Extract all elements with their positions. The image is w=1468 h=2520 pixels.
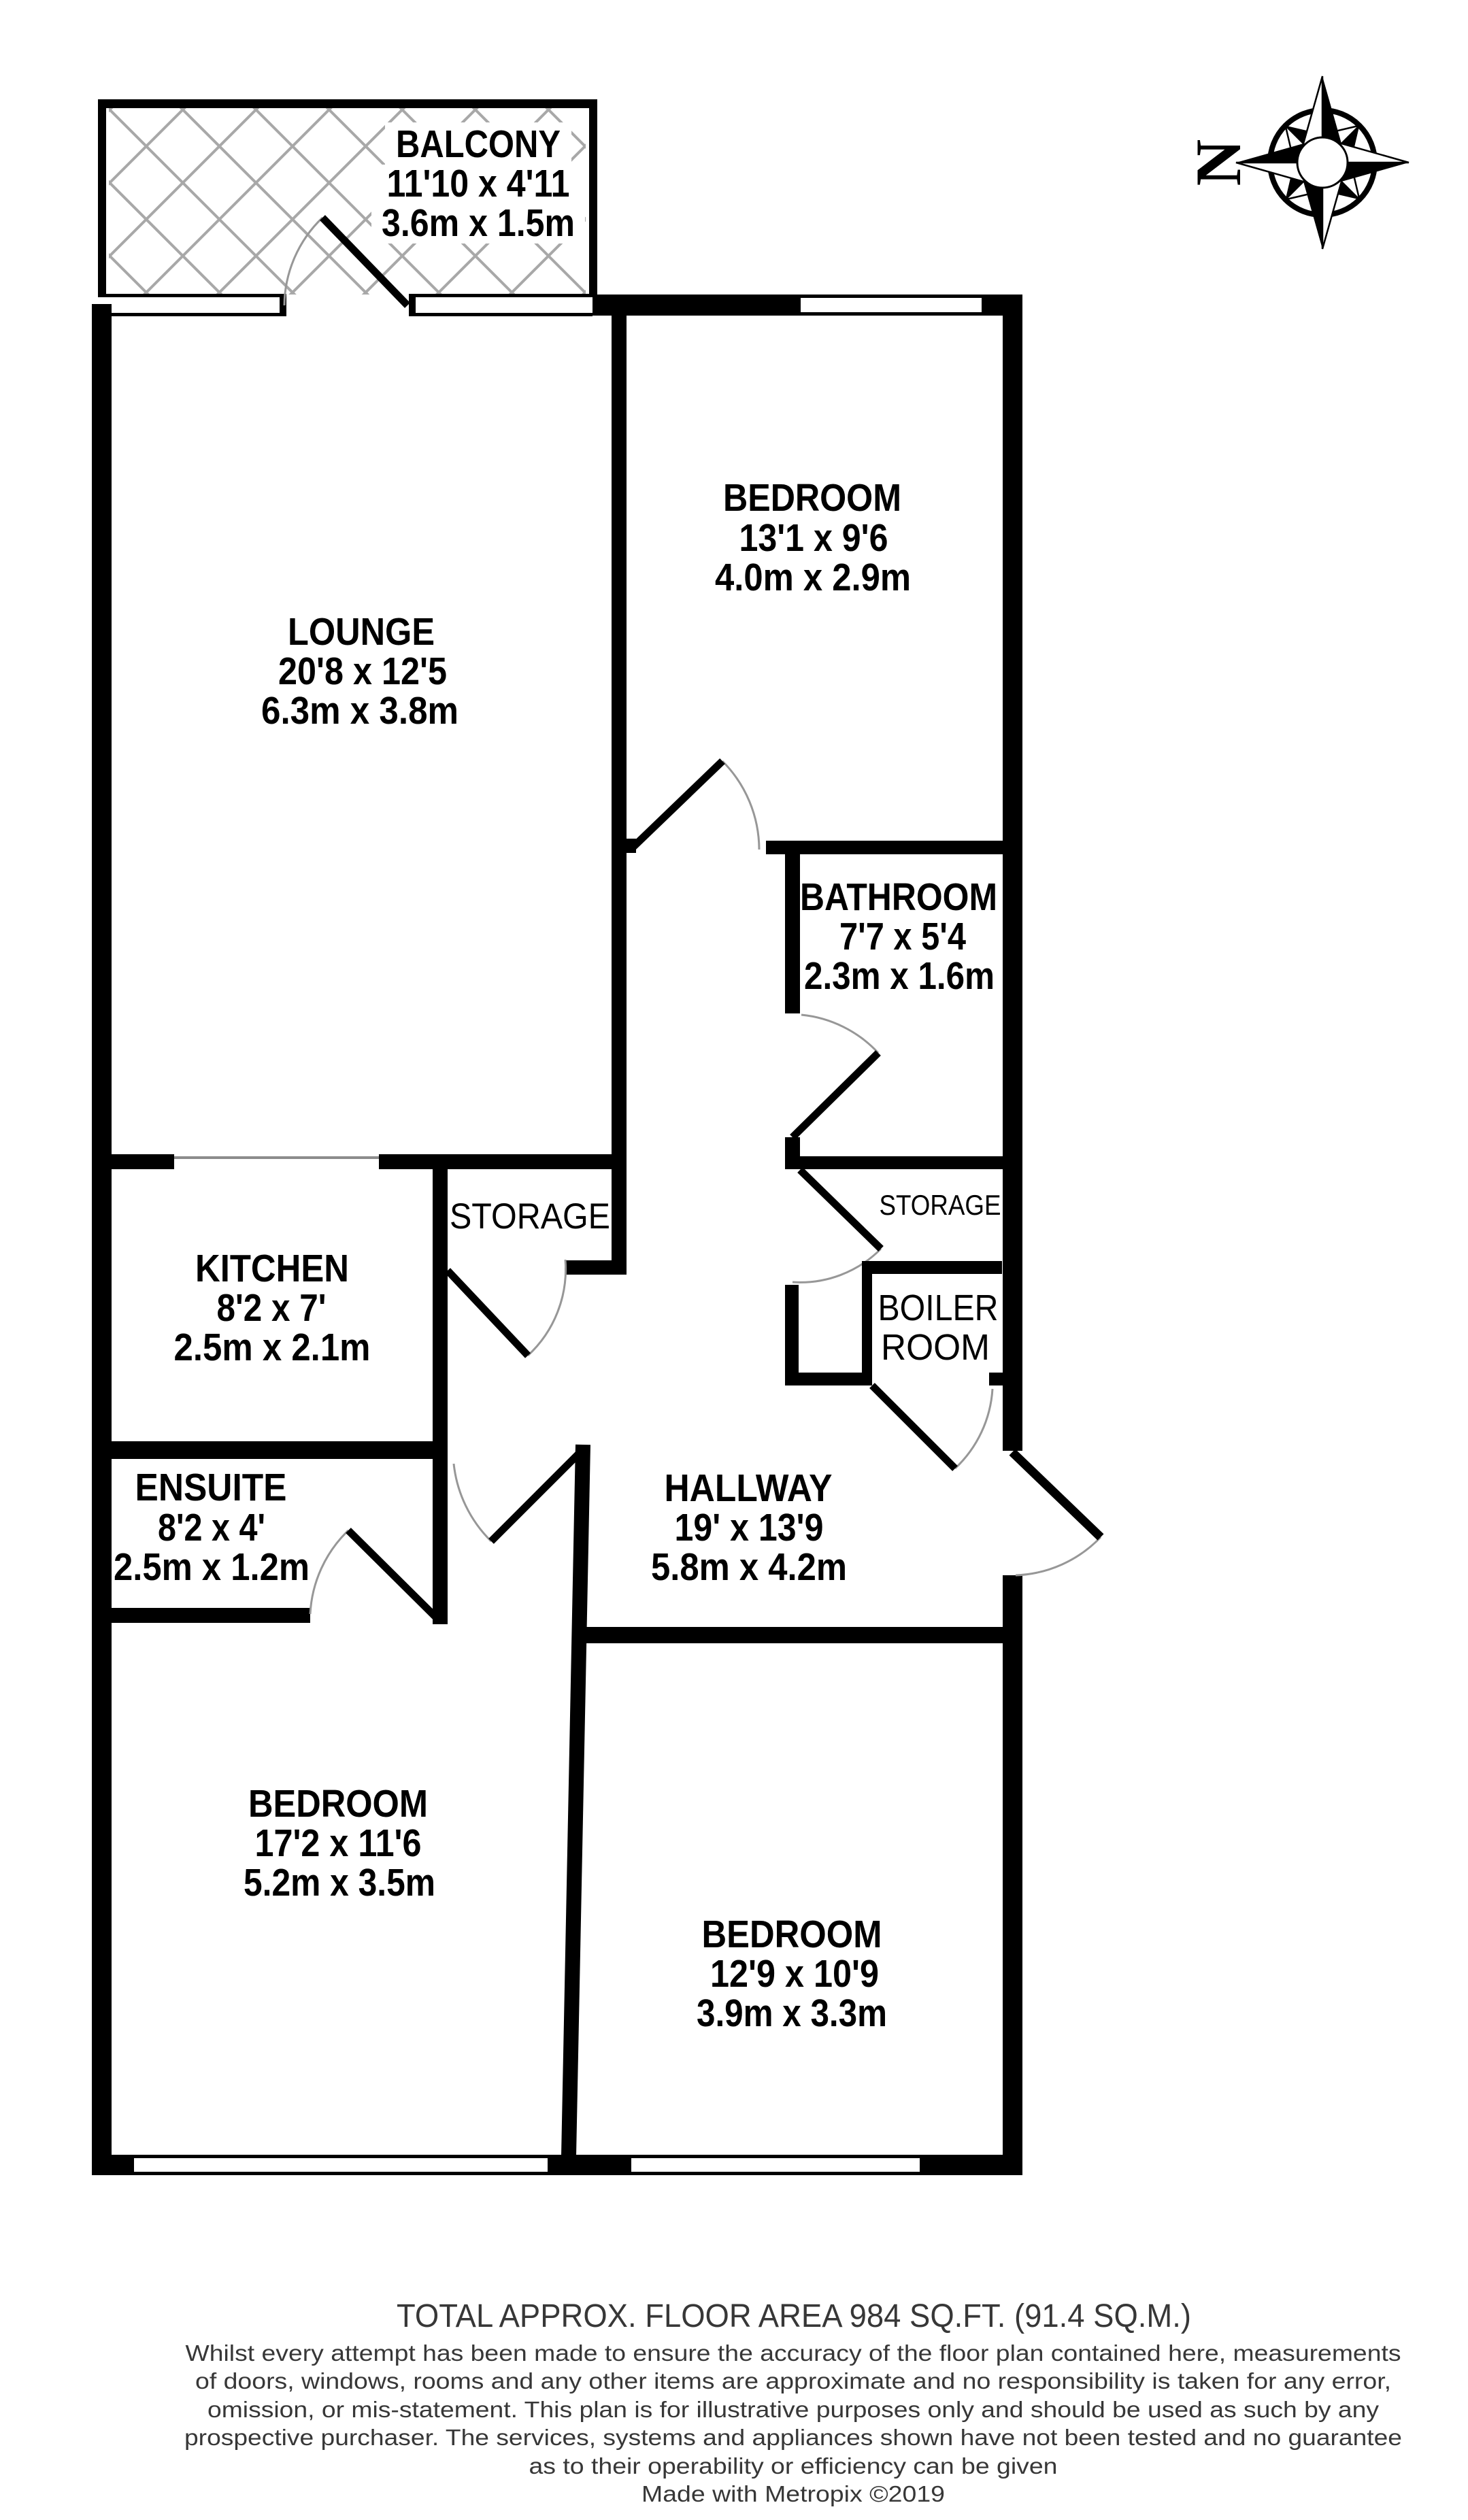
- svg-text:KITCHEN: KITCHEN: [195, 1247, 349, 1290]
- svg-text:2.5m x 1.2m: 2.5m x 1.2m: [114, 1545, 310, 1589]
- svg-text:N: N: [1182, 139, 1254, 186]
- svg-text:19' x 13'9: 19' x 13'9: [675, 1506, 824, 1549]
- svg-text:omission, or mis-statement. Th: omission, or mis-statement. This plan is…: [207, 2397, 1380, 2422]
- svg-text:13'1 x 9'6: 13'1 x 9'6: [739, 516, 888, 560]
- svg-text:17'2 x 11'6: 17'2 x 11'6: [255, 1821, 422, 1865]
- svg-text:2.5m x 2.1m: 2.5m x 2.1m: [174, 1326, 371, 1369]
- svg-text:5.8m x 4.2m: 5.8m x 4.2m: [651, 1545, 847, 1589]
- svg-text:11'10 x 4'11: 11'10 x 4'11: [387, 162, 570, 205]
- svg-text:3.6m x 1.5m: 3.6m x 1.5m: [382, 201, 575, 245]
- svg-text:BEDROOM: BEDROOM: [702, 1913, 882, 1956]
- svg-text:7'7 x 5'4: 7'7 x 5'4: [839, 915, 966, 958]
- svg-text:BEDROOM: BEDROOM: [723, 476, 901, 520]
- svg-text:of doors, windows, rooms and a: of doors, windows, rooms and any other i…: [195, 2368, 1391, 2393]
- svg-text:ROOM: ROOM: [881, 1327, 990, 1368]
- svg-text:HALLWAY: HALLWAY: [665, 1466, 833, 1510]
- svg-text:BEDROOM: BEDROOM: [248, 1782, 428, 1826]
- svg-text:3.9m x 3.3m: 3.9m x 3.3m: [697, 1992, 887, 2035]
- svg-text:6.3m x 3.8m: 6.3m x 3.8m: [261, 689, 458, 733]
- svg-text:2.3m x 1.6m: 2.3m x 1.6m: [804, 954, 995, 998]
- svg-text:BATHROOM: BATHROOM: [800, 875, 997, 919]
- svg-text:ENSUITE: ENSUITE: [135, 1466, 287, 1509]
- svg-text:8'2 x 7': 8'2 x 7': [217, 1286, 327, 1330]
- svg-text:prospective purchaser. The ser: prospective purchaser. The services, sys…: [184, 2425, 1402, 2450]
- svg-text:BOILER: BOILER: [878, 1288, 999, 1328]
- svg-text:as to their operability or eff: as to their operability or efficiency ca…: [529, 2453, 1058, 2479]
- svg-text:5.2m x 3.5m: 5.2m x 3.5m: [244, 1861, 435, 1904]
- svg-text:BALCONY: BALCONY: [396, 122, 561, 166]
- svg-text:8'2 x 4': 8'2 x 4': [158, 1506, 265, 1549]
- svg-text:4.0m x 2.9m: 4.0m x 2.9m: [715, 556, 911, 599]
- svg-text:12'9 x 10'9: 12'9 x 10'9: [710, 1952, 879, 1996]
- svg-text:20'8 x 12'5: 20'8 x 12'5: [278, 650, 447, 693]
- svg-text:TOTAL APPROX. FLOOR AREA 984 S: TOTAL APPROX. FLOOR AREA 984 SQ.FT. (91.…: [397, 2298, 1191, 2334]
- svg-text:Whilst every attempt has been: Whilst every attempt has been made to en…: [186, 2340, 1401, 2366]
- svg-text:Made with Metropix ©2019: Made with Metropix ©2019: [641, 2481, 945, 2506]
- svg-text:STORAGE: STORAGE: [880, 1189, 1001, 1221]
- svg-text:LOUNGE: LOUNGE: [288, 610, 435, 654]
- svg-text:STORAGE: STORAGE: [450, 1196, 610, 1237]
